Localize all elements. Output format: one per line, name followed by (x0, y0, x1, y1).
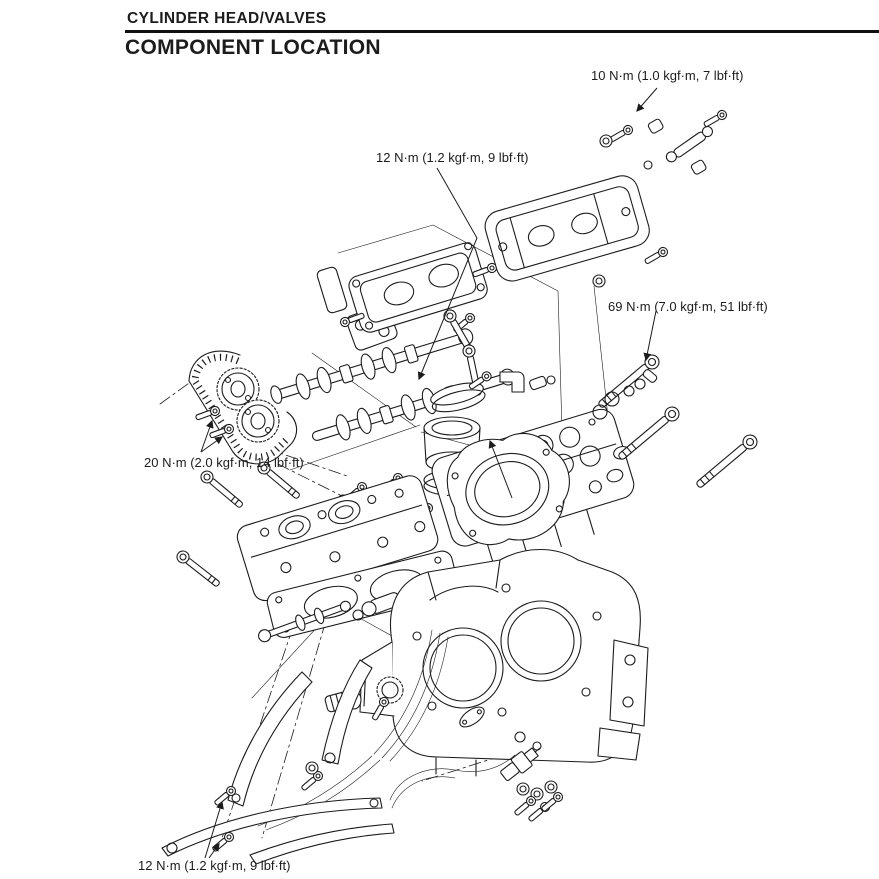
exploded-view-diagram (0, 0, 879, 879)
torque-label-head-bolts: 69 N·m (7.0 kgf·m, 51 lbf·ft) (608, 299, 768, 314)
torque-label-valve-cover: 10 N·m (1.0 kgf·m, 7 lbf·ft) (591, 68, 743, 83)
manual-page: CYLINDER HEAD/VALVES COMPONENT LOCATION (0, 0, 879, 879)
torque-label-cam-sprocket: 20 N·m (2.0 kgf·m, 14 lbf·ft) (144, 455, 304, 470)
torque-label-breather-plate: 12 N·m (1.2 kgf·m, 9 lbf·ft) (376, 150, 528, 165)
torque-label-chain-guide: 12 N·m (1.2 kgf·m, 9 lbf·ft) (138, 858, 290, 873)
cylinder-head-cover (481, 109, 728, 287)
